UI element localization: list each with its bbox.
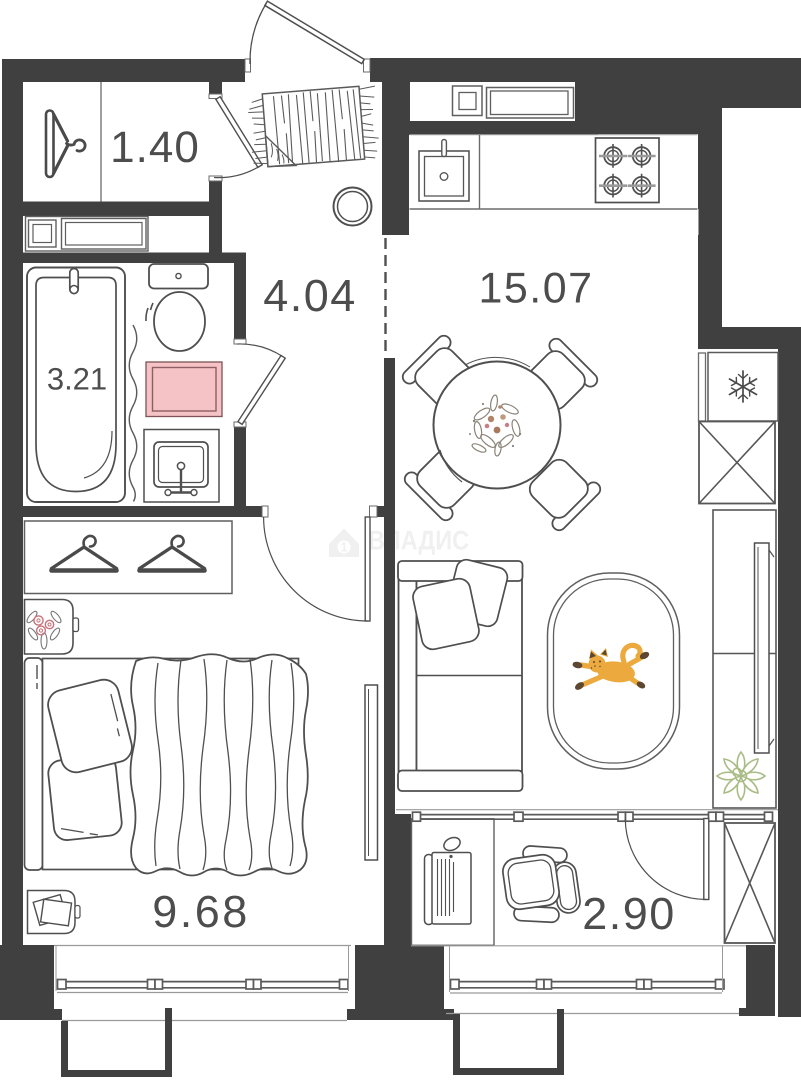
svg-text:ВЛАДИС: ВЛАДИС	[368, 526, 469, 556]
svg-text:1: 1	[340, 540, 347, 555]
svg-text:2.90: 2.90	[582, 888, 676, 939]
svg-text:4.04: 4.04	[263, 270, 357, 321]
svg-text:9.68: 9.68	[152, 886, 250, 937]
svg-text:15.07: 15.07	[478, 265, 593, 313]
svg-text:1.40: 1.40	[110, 123, 200, 172]
svg-text:3.21: 3.21	[47, 362, 107, 397]
